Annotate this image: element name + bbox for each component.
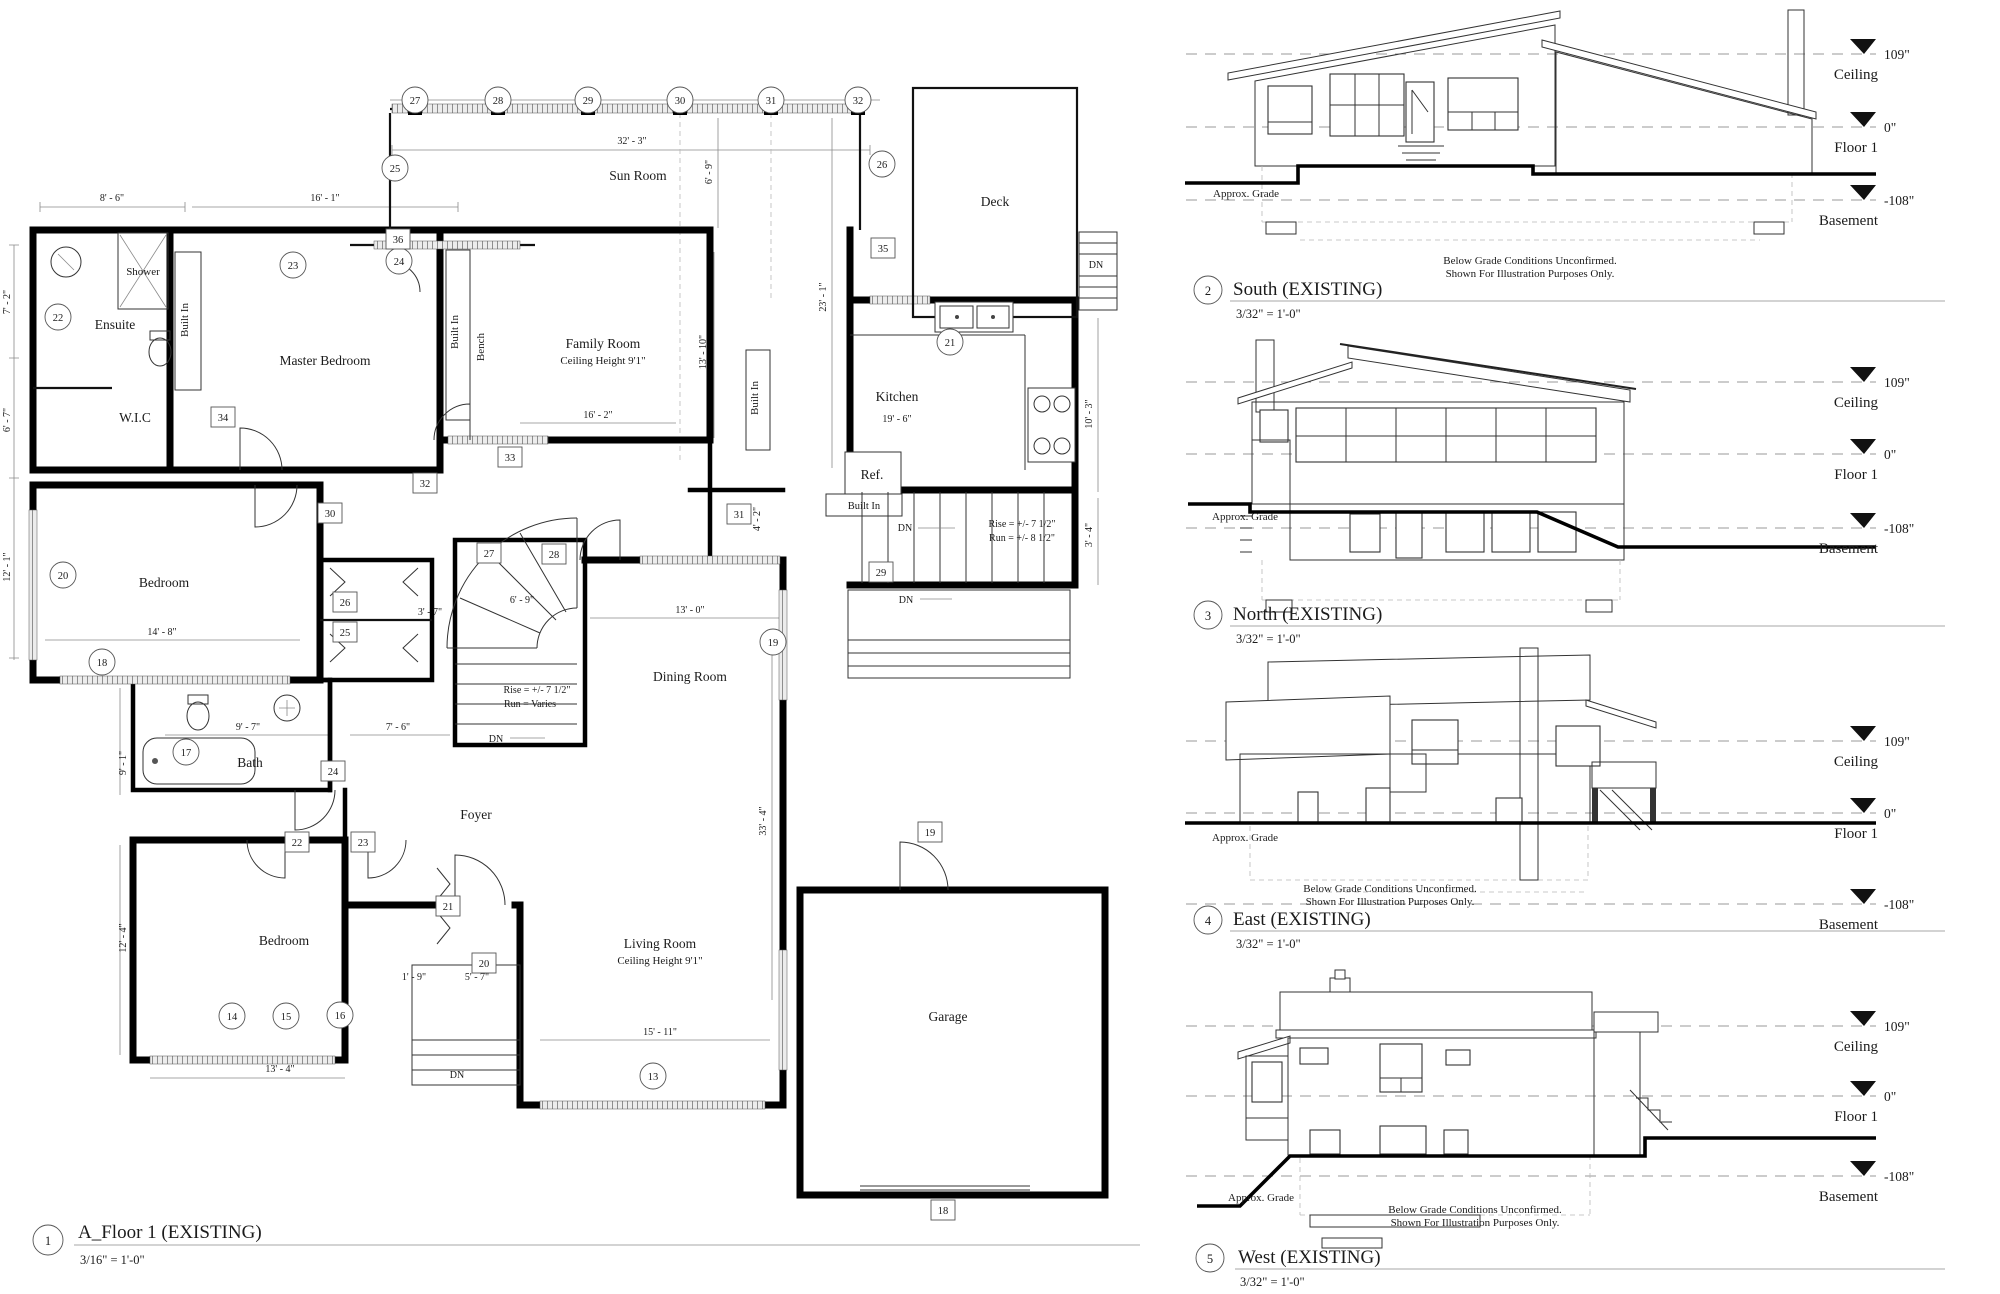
west-basement-value: -108": [1884, 1169, 1914, 1184]
dim-6-9-v: 6' - 9": [704, 160, 715, 184]
elevation-east-drawing: [1226, 648, 1656, 892]
floor-plan: DN Ref. Built In DN Rise = +/- 7 1/2" Ru…: [2, 87, 1140, 1267]
west-grade-line: [1197, 1138, 1876, 1206]
dim-7-6: 7' - 6": [386, 722, 410, 733]
south-ceiling-label: Ceiling: [1834, 67, 1879, 83]
east-note-line1: Below Grade Conditions Unconfirmed.: [1303, 883, 1477, 895]
dim-1-9: 1' - 9": [402, 972, 426, 983]
room-label-garage: Garage: [929, 1009, 968, 1024]
east-ceiling-label: Ceiling: [1834, 754, 1879, 770]
dim-8-6: 8' - 6": [100, 193, 124, 204]
dim-3-7: 3' - 7": [418, 607, 442, 618]
center-stairs-dn-label: DN: [489, 734, 503, 745]
shower-label: Shower: [126, 266, 160, 278]
east-floor-label: Floor 1: [1834, 826, 1878, 842]
south-scale: 3/32" = 1'-0": [1236, 307, 1301, 321]
dimension-labels: 8' - 6" 16' - 1" 32' - 3" 6' - 9" 23' - …: [2, 136, 1095, 1075]
bench-label: Bench: [475, 332, 487, 361]
room-label-living-room: Living Room: [624, 936, 697, 951]
south-grade-line: [1185, 166, 1876, 183]
door-tag-19: 19: [925, 828, 936, 839]
door-tag-24: 24: [328, 767, 339, 778]
side-stoop-dn-label: DN: [899, 595, 913, 606]
south-note-line2: Shown For Illustration Purposes Only.: [1446, 268, 1615, 280]
dim-19-6: 19' - 6": [882, 414, 911, 425]
west-floor-label: Floor 1: [1834, 1109, 1878, 1125]
built-in-label-family: Built In: [449, 315, 461, 349]
door-tag-32: 32: [420, 479, 431, 490]
dim-16-1: 16' - 1": [310, 193, 339, 204]
north-ceiling-label: Ceiling: [1834, 395, 1879, 411]
center-stair-rise-note: Rise = +/- 7 1/2": [503, 685, 570, 696]
north-title: North (EXISTING): [1233, 604, 1382, 625]
east-number: 4: [1205, 914, 1212, 928]
window-marker-20: 20: [58, 571, 69, 582]
living-room-ceiling-height: Ceiling Height 9'1": [617, 955, 702, 967]
east-note-line2: Shown For Illustration Purposes Only.: [1306, 896, 1475, 908]
door-tag-21: 21: [443, 902, 454, 913]
window-marker-19: 19: [768, 638, 779, 649]
floor-plan-title-block: 1 A_Floor 1 (EXISTING) 3/16" = 1'-0": [33, 1222, 1140, 1267]
dim-32-3: 32' - 3": [617, 136, 646, 147]
east-title: East (EXISTING): [1233, 909, 1371, 930]
dim-10-3: 10' - 3": [1084, 399, 1095, 428]
window-marker-13: 13: [648, 1072, 659, 1083]
built-in-label-master: Built In: [179, 303, 191, 337]
kitchen-stair-rise-note: Rise = +/- 7 1/2": [988, 519, 1055, 530]
side-stoop: DN: [848, 590, 1070, 678]
window-marker-23: 23: [288, 261, 299, 272]
dim-23-1: 23' - 1": [818, 282, 829, 311]
west-ceiling-label: Ceiling: [1834, 1039, 1879, 1055]
dim-3-4: 3' - 4": [1084, 523, 1095, 547]
door-tag-18: 18: [938, 1206, 949, 1217]
door-tag-27: 27: [484, 549, 495, 560]
window-marker-24: 24: [394, 257, 405, 268]
south-note-line1: Below Grade Conditions Unconfirmed.: [1443, 255, 1617, 267]
west-note-line2: Shown For Illustration Purposes Only.: [1391, 1217, 1560, 1229]
door-tag-28: 28: [549, 550, 560, 561]
family-room-ceiling-height: Ceiling Height 9'1": [560, 355, 645, 367]
north-floor-value: 0": [1884, 447, 1896, 462]
west-title-block: 5 West (EXISTING) 3/32" = 1'-0": [1196, 1244, 1945, 1289]
dim-15-11: 15' - 11": [643, 1027, 677, 1038]
east-floor-value: 0": [1884, 806, 1896, 821]
north-number: 3: [1205, 609, 1211, 623]
grid-marker-30: 30: [675, 96, 686, 107]
kitchen-stair-run-note: Run = +/- 8 1/2": [989, 533, 1055, 544]
dim-7-2: 7' - 2": [2, 290, 13, 314]
north-title-block: 3 North (EXISTING) 3/32" = 1'-0": [1194, 601, 1945, 646]
room-label-bedroom-low: Bedroom: [259, 933, 310, 948]
plan-walls: [33, 109, 1105, 1195]
door-tag-31: 31: [734, 510, 745, 521]
room-label-family-room: Family Room: [566, 336, 641, 351]
door-tag-29: 29: [876, 568, 887, 579]
door-tag-25: 25: [340, 628, 351, 639]
door-tag-34: 34: [218, 413, 229, 424]
door-tag-22: 22: [292, 838, 303, 849]
door-tag-23: 23: [358, 838, 369, 849]
window-marker-15: 15: [281, 1012, 292, 1023]
elevation-south-drawing: [1228, 10, 1816, 240]
dim-4-2: 4' - 2": [752, 507, 763, 531]
drawing-canvas: DN Ref. Built In DN Rise = +/- 7 1/2" Ru…: [0, 0, 2000, 1294]
south-ceiling-value: 109": [1884, 47, 1910, 62]
room-label-bath: Bath: [237, 755, 263, 770]
floor-plan-scale: 3/16" = 1'-0": [80, 1253, 145, 1267]
room-label-deck: Deck: [981, 194, 1010, 209]
door-tag-26: 26: [340, 598, 351, 609]
built-in-label-kitchen-hall: Built In: [749, 381, 761, 415]
center-stair-run-note: Run = Varies: [504, 699, 556, 710]
dim-12-4: 12' - 4": [118, 923, 129, 952]
kitchen-built-in-label: Built In: [848, 501, 881, 512]
fridge-label: Ref.: [861, 467, 884, 482]
room-label-wic: W.I.C: [119, 410, 151, 425]
front-stoop: DN: [412, 965, 520, 1085]
window-marker-17: 17: [181, 748, 192, 759]
room-label-foyer: Foyer: [460, 807, 492, 822]
room-label-bedroom-mid: Bedroom: [139, 575, 190, 590]
window-marker-16: 16: [335, 1011, 346, 1022]
west-ceiling-value: 109": [1884, 1019, 1910, 1034]
elevation-east: Approx. Grade 109" Ceiling 0" Floor 1 -1…: [1185, 648, 1945, 951]
elevation-south: Approx. Grade 109" Ceiling 0" Floor 1 -1…: [1185, 10, 1945, 321]
west-basement-label: Basement: [1819, 1189, 1879, 1205]
room-label-dining-room: Dining Room: [653, 669, 727, 684]
north-ceiling-value: 109": [1884, 375, 1910, 390]
west-title: West (EXISTING): [1238, 1247, 1381, 1268]
north-floor-label: Floor 1: [1834, 467, 1878, 483]
room-label-sun-room: Sun Room: [609, 168, 667, 183]
window-marker-14: 14: [227, 1012, 238, 1023]
room-label-master-bedroom: Master Bedroom: [279, 353, 371, 368]
floor-plan-number: 1: [45, 1234, 51, 1248]
front-stoop-dn-label: DN: [450, 1070, 464, 1081]
room-label-ensuite: Ensuite: [95, 317, 136, 332]
south-grade-label: Approx. Grade: [1213, 188, 1279, 200]
east-basement-value: -108": [1884, 897, 1914, 912]
dim-33-4: 33' - 4": [758, 806, 769, 835]
grid-marker-29: 29: [583, 96, 594, 107]
dim-14-8: 14' - 8": [147, 627, 176, 638]
bath-fixtures: [143, 695, 300, 784]
dim-5-7: 5' - 7": [465, 972, 489, 983]
elevation-north-drawing: [1238, 340, 1636, 612]
grid-marker-27: 27: [410, 96, 421, 107]
east-grade-label: Approx. Grade: [1212, 832, 1278, 844]
east-ceiling-value: 109": [1884, 734, 1910, 749]
north-grade-line: [1188, 504, 1876, 547]
south-title-block: 2 South (EXISTING) 3/32" = 1'-0": [1194, 276, 1945, 321]
stair-dim-label: 6' - 9": [510, 595, 534, 606]
door-tag-33: 33: [505, 453, 516, 464]
window-marker-18: 18: [97, 658, 108, 669]
grid-marker-31: 31: [766, 96, 777, 107]
kitchen-stairs-dn-label: DN: [898, 523, 912, 534]
dim-6-7: 6' - 7": [2, 408, 13, 432]
floor-plan-title: A_Floor 1 (EXISTING): [78, 1222, 262, 1243]
west-floor-value: 0": [1884, 1089, 1896, 1104]
deck-area: DN: [913, 88, 1117, 317]
window-marker-21: 21: [945, 338, 956, 349]
dim-16-2: 16' - 2": [583, 410, 612, 421]
door-tag-36: 36: [393, 235, 404, 246]
west-grade-label: Approx. Grade: [1228, 1192, 1294, 1204]
south-floor-value: 0": [1884, 120, 1896, 135]
grid-marker-32: 32: [853, 96, 864, 107]
south-basement-value: -108": [1884, 193, 1914, 208]
south-number: 2: [1205, 284, 1211, 298]
east-scale: 3/32" = 1'-0": [1236, 937, 1301, 951]
north-scale: 3/32" = 1'-0": [1236, 632, 1301, 646]
east-level-markers: 109" Ceiling 0" Floor 1 -108" Basement: [1819, 726, 1914, 933]
south-basement-label: Basement: [1819, 213, 1879, 229]
deck-stairs-dn-label: DN: [1089, 260, 1103, 271]
south-title: South (EXISTING): [1233, 279, 1382, 300]
west-number: 5: [1207, 1252, 1213, 1266]
window-marker-22: 22: [53, 313, 64, 324]
door-tag-20: 20: [479, 959, 490, 970]
window-marker-25: 25: [390, 164, 401, 175]
west-scale: 3/32" = 1'-0": [1240, 1275, 1305, 1289]
elevation-north: Approx. Grade 109" Ceiling 0" Floor 1 -1…: [1186, 340, 1945, 646]
north-basement-label: Basement: [1819, 541, 1879, 557]
dim-13-4: 13' - 4": [265, 1064, 294, 1075]
door-tag-30: 30: [325, 509, 336, 520]
room-label-kitchen: Kitchen: [876, 389, 919, 404]
south-floor-label: Floor 1: [1834, 140, 1878, 156]
north-grade-label: Approx. Grade: [1212, 511, 1278, 523]
grid-marker-28: 28: [493, 96, 504, 107]
elevation-west: Approx. Grade 109" Ceiling 0" Floor 1 -1…: [1186, 970, 1945, 1289]
dim-9-7: 9' - 7": [236, 722, 260, 733]
door-tag-35: 35: [878, 244, 889, 255]
dim-9-1: 9' - 1": [118, 751, 129, 775]
architectural-drawing-sheet: DN Ref. Built In DN Rise = +/- 7 1/2" Ru…: [0, 0, 2000, 1294]
dim-13-0: 13' - 0": [675, 605, 704, 616]
north-basement-value: -108": [1884, 521, 1914, 536]
dim-12-1: 12' - 1": [2, 552, 13, 581]
west-note-line1: Below Grade Conditions Unconfirmed.: [1388, 1204, 1562, 1216]
window-marker-26: 26: [877, 160, 888, 171]
dim-13-10: 13' - 10": [698, 335, 709, 369]
